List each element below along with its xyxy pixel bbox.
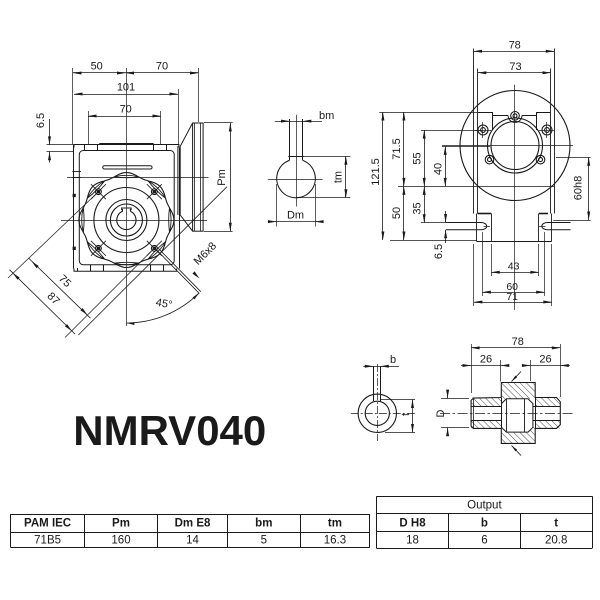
svg-text:71B5: 71B5 (34, 534, 61, 546)
svg-text:18: 18 (406, 535, 419, 547)
svg-text:Output: Output (467, 500, 502, 512)
svg-text:b: b (481, 518, 488, 530)
svg-text:tm: tm (333, 171, 345, 183)
svg-text:6.5: 6.5 (433, 244, 445, 259)
svg-text:Dm E8: Dm E8 (175, 518, 211, 530)
svg-text:D: D (435, 409, 447, 417)
svg-text:6: 6 (481, 535, 487, 547)
svg-text:43: 43 (508, 261, 520, 273)
svg-text:70: 70 (156, 61, 168, 73)
svg-text:6.5: 6.5 (35, 113, 47, 128)
svg-text:PAM IEC: PAM IEC (24, 518, 71, 530)
svg-text:50: 50 (391, 207, 403, 219)
svg-text:5: 5 (261, 534, 267, 546)
svg-text:26: 26 (539, 354, 551, 366)
svg-text:50: 50 (91, 61, 103, 73)
svg-text:tm: tm (328, 518, 342, 530)
svg-text:t: t (400, 413, 412, 416)
svg-text:b: b (390, 354, 396, 366)
svg-text:16.3: 16.3 (324, 534, 346, 546)
svg-text:bm: bm (319, 110, 334, 122)
svg-text:101: 101 (117, 82, 135, 94)
svg-text:70: 70 (120, 104, 132, 116)
svg-text:NMRV040: NMRV040 (73, 407, 266, 454)
svg-text:20.8: 20.8 (545, 535, 567, 547)
svg-text:26: 26 (480, 354, 492, 366)
svg-text:71.5: 71.5 (391, 138, 403, 159)
svg-text:55: 55 (412, 152, 424, 164)
svg-text:78: 78 (509, 40, 521, 52)
svg-text:D H8: D H8 (399, 518, 426, 530)
svg-text:40: 40 (433, 163, 445, 175)
svg-text:160: 160 (111, 534, 130, 546)
svg-text:35: 35 (412, 202, 424, 214)
svg-text:Dm: Dm (287, 210, 304, 222)
svg-text:t: t (554, 518, 558, 530)
svg-text:bm: bm (255, 518, 272, 530)
svg-text:73: 73 (509, 61, 521, 73)
svg-text:121.5: 121.5 (370, 158, 382, 186)
svg-text:Pm: Pm (112, 518, 130, 530)
svg-text:60h8: 60h8 (573, 176, 585, 200)
svg-text:78: 78 (512, 336, 524, 348)
svg-text:Pm: Pm (216, 169, 228, 186)
svg-text:71: 71 (506, 291, 518, 303)
svg-text:14: 14 (186, 534, 199, 546)
